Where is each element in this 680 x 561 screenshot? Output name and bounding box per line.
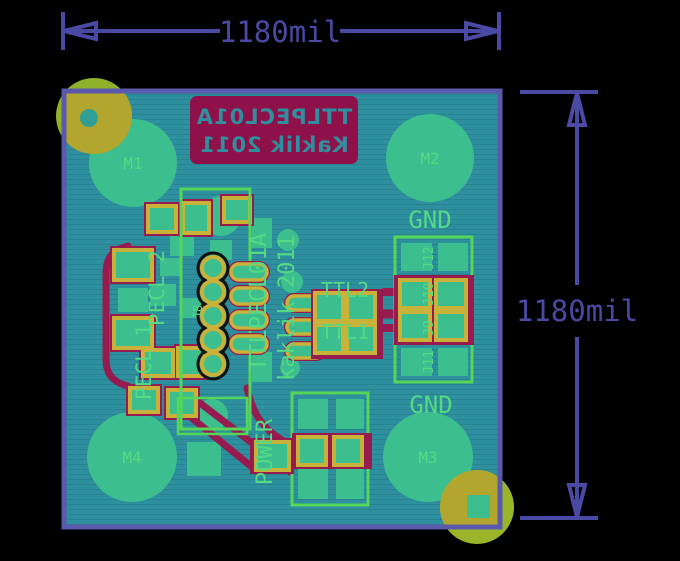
copper-square-pad <box>187 442 221 476</box>
pcb-board: M1 M2 M3 M4 GND GND TTL2 TTL1 PECL 2 PEC… <box>56 78 514 544</box>
ttl1-label: TTL1 <box>321 320 369 344</box>
gnd-top-label: GND <box>408 206 451 234</box>
pcb-canvas: M1 M2 M3 M4 GND GND TTL2 TTL1 PECL 2 PEC… <box>0 0 680 561</box>
j9-label: J9 <box>422 320 437 336</box>
j12-label: J12 <box>422 246 437 269</box>
j8-label: J8 <box>191 305 205 319</box>
mounting-hole-m4-label: M4 <box>122 448 141 467</box>
dimension-horizontal: 1180mil <box>63 12 499 50</box>
j11-label: J11 <box>422 350 437 373</box>
mounting-hole-m1-label: M1 <box>123 154 142 173</box>
ttl2-label: TTL2 <box>321 278 369 302</box>
power-label: POWER <box>253 418 278 485</box>
pecl1-label: PECL 1 <box>132 324 156 400</box>
silk-block-bottom: TTLPECL01A Kaklik 2011 <box>190 96 358 164</box>
j10-label: J10 <box>422 282 437 305</box>
drill-hole-bottom-right <box>467 495 490 518</box>
dimension-vertical: 1180mil <box>516 92 638 518</box>
author-label: kaklik 2011 <box>275 235 300 381</box>
silk-mirror-line1: TTLPECL01A <box>196 105 353 129</box>
part-title-label: TTLPECL01A <box>246 233 272 372</box>
drill-pad-bottom-right <box>440 470 514 544</box>
mounting-hole-m3-label: M3 <box>418 448 437 467</box>
drill-hole-top-left <box>80 109 98 127</box>
gnd-bottom-label: GND <box>409 391 452 419</box>
pcb-layout-view: M1 M2 M3 M4 GND GND TTL2 TTL1 PECL 2 PEC… <box>0 0 680 561</box>
dimension-vertical-label: 1180mil <box>516 294 638 328</box>
mounting-hole-m2-label: M2 <box>420 149 439 168</box>
dimension-horizontal-label: 1180mil <box>219 15 341 49</box>
silk-mirror-line2: Kaklik 2011 <box>199 133 349 157</box>
pecl2-label: PECL 2 <box>145 250 169 326</box>
